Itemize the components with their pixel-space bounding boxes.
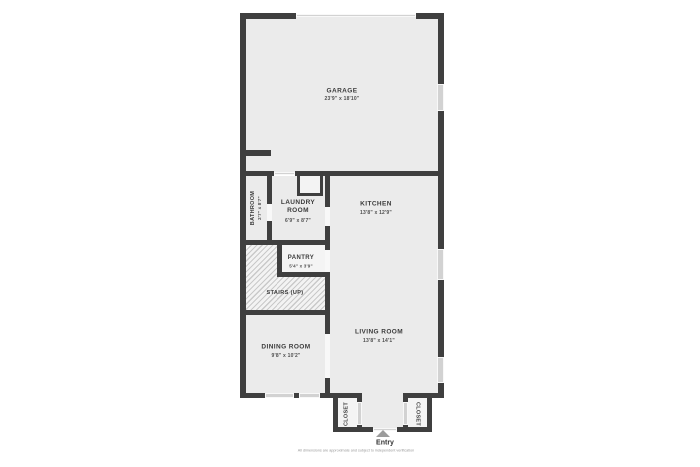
garage-floor (246, 17, 438, 172)
laundry-door-opening (325, 207, 330, 226)
room-label-laundry: LAUNDRY ROOM (275, 199, 321, 215)
room-dims-pantry: 5'4" x 3'9" (289, 264, 313, 269)
room-dims-kitchen: 13'8" x 12'9" (360, 210, 392, 216)
wall (333, 427, 373, 432)
wall (240, 240, 330, 245)
room-dims-dining: 9'8" x 10'2" (272, 353, 301, 359)
dining-living-opening (325, 334, 330, 378)
wall (240, 393, 265, 398)
garage-window (437, 84, 444, 111)
room-label-bathroom: BATHROOM 2'7" x 8'7" (250, 191, 262, 225)
kitchen-window (437, 249, 444, 280)
room-name-closet-left: CLOSET (344, 402, 351, 426)
room-name-closet-right: CLOSET (414, 402, 421, 426)
room-dims-garage: 23'9" x 18'10" (325, 96, 360, 102)
wall (277, 272, 330, 277)
living-room-window (437, 357, 444, 383)
floorplan: GARAGE 23'9" x 18'10" BATHROOM 2'7" x 8'… (0, 0, 700, 467)
wall (267, 176, 272, 204)
room-dims-living: 13'8" x 14'1" (363, 338, 395, 344)
room-label-closet-left: CLOSET (344, 402, 351, 426)
chase-box (297, 176, 323, 196)
wall (240, 310, 330, 315)
garage-entry-door (274, 172, 295, 175)
room-label-closet-right: CLOSET (414, 402, 421, 426)
entry-label: Entry (376, 440, 394, 447)
wall (240, 13, 296, 19)
wall (403, 393, 444, 398)
room-label-stairs: STAIRS (UP) (267, 290, 304, 296)
wall (320, 393, 330, 398)
wall (438, 13, 444, 398)
room-dims-laundry: 6'9" x 8'7" (285, 218, 311, 224)
wall (397, 427, 432, 432)
wall-stub (240, 150, 271, 156)
room-label-dining: DINING ROOM (261, 344, 310, 351)
garage-door (296, 14, 416, 17)
wall (325, 272, 330, 334)
room-dims-bathroom: 2'7" x 8'7" (257, 191, 262, 225)
wall (325, 171, 330, 207)
closet-left-door (357, 402, 362, 425)
dining-window (265, 393, 294, 398)
wall (325, 226, 330, 250)
pantry-door-opening (325, 250, 330, 272)
room-label-living: LIVING ROOM (355, 329, 403, 336)
room-label-kitchen: KITCHEN (360, 201, 392, 208)
entry-arrow-icon (376, 430, 390, 437)
dining-window (299, 393, 320, 398)
room-label-garage: GARAGE (327, 88, 358, 95)
stairs-hatch (246, 245, 277, 310)
closet-right-door (403, 402, 408, 425)
room-name-bathroom: BATHROOM (250, 191, 257, 225)
room-label-pantry: PANTRY (288, 255, 314, 261)
wall (240, 13, 246, 398)
disclaimer-text: All dimensions are approximate and subje… (298, 449, 414, 453)
bathroom-door-opening (267, 204, 272, 221)
